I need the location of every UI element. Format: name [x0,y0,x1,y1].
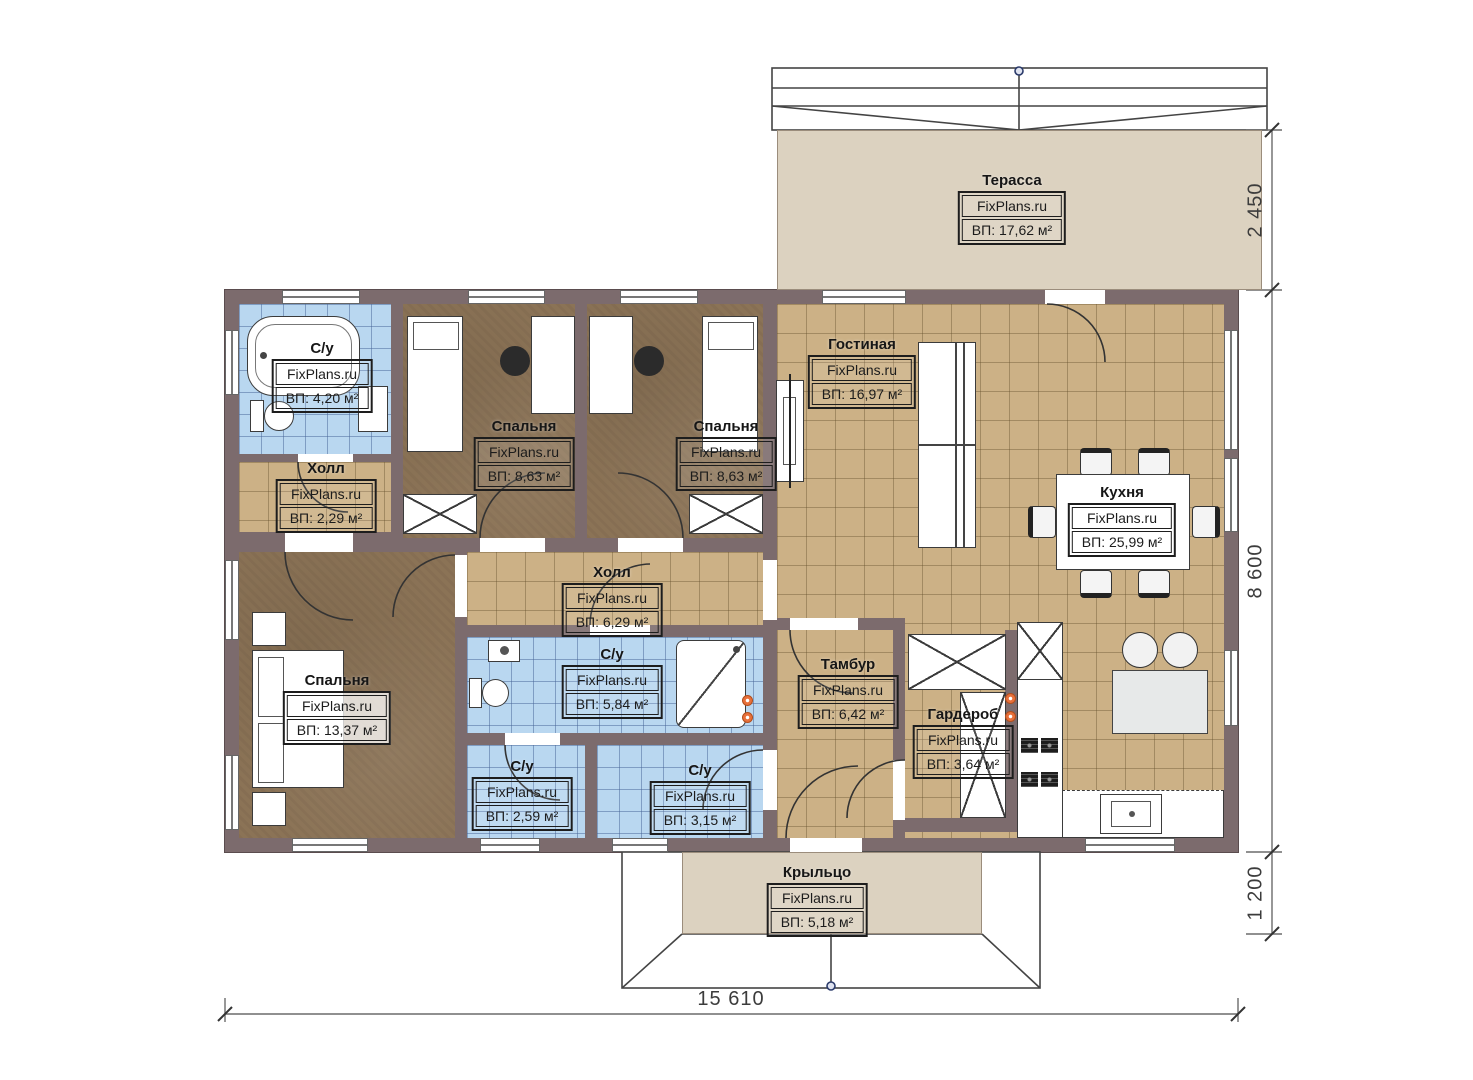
toilet-bowl [482,679,509,707]
wardrobe-cabinet [689,494,763,534]
door-opening [618,538,683,552]
room-area: ВП: 3,15 м² [654,809,747,831]
stove-burner [1021,738,1038,753]
stove-burner [1021,772,1038,787]
room-name: С/у [650,762,751,779]
room-area: ВП: 5,84 м² [566,693,659,715]
room-name: С/у [562,646,663,663]
room-name: Тамбур [798,656,899,673]
desk [589,316,633,414]
room-name: Спальня [676,418,777,435]
dining-chair [1138,448,1170,476]
wall-tambour-top-left [777,618,790,630]
brand-watermark: FixPlans.ru [680,441,773,463]
room-label-living: Гостиная FixPlans.ru ВП: 16,97 м² [808,336,916,409]
brand-watermark: FixPlans.ru [476,781,569,803]
room-label-bedroom3: Спальня FixPlans.ru ВП: 13,37 м² [283,672,391,745]
brand-watermark: FixPlans.ru [478,441,571,463]
brand-watermark: FixPlans.ru [771,887,864,909]
room-area: ВП: 25,99 м² [1072,531,1172,553]
room-area: ВП: 2,59 м² [476,805,569,827]
room-label-hall1: Холл FixPlans.ru ВП: 2,29 м² [276,460,377,533]
toilet [469,678,482,708]
bed [407,316,463,452]
door-opening [763,750,777,810]
window [480,838,540,852]
terrace-door-opening [1045,290,1105,304]
kitchen-sink [1100,794,1162,834]
sink [488,640,520,662]
room-name: Спальня [474,418,575,435]
window [225,560,239,640]
nightstand [252,612,286,646]
dining-chair [1138,570,1170,598]
room-area: ВП: 6,42 м² [802,703,895,725]
fridge [1017,622,1063,680]
room-name: Кухня [1068,484,1176,501]
room-area: ВП: 8,63 м² [680,465,773,487]
brand-watermark: FixPlans.ru [566,587,659,609]
entrance-door-opening [790,838,862,852]
brand-watermark: FixPlans.ru [654,785,747,807]
door-opening [285,532,353,552]
wall-wardrobe-bottom [905,818,1017,832]
room-label-bath1: С/у FixPlans.ru ВП: 4,20 м² [272,340,373,413]
room-area: ВП: 16,97 м² [812,383,912,405]
room-label-terrace: Терасса FixPlans.ru ВП: 17,62 м² [958,172,1066,245]
window [282,290,360,304]
power-outlet [1005,693,1016,704]
office-chair [500,346,530,376]
dining-chair [1028,506,1056,538]
room-label-kitchen: Кухня FixPlans.ru ВП: 25,99 м² [1068,484,1176,557]
room-area: ВП: 6,29 м² [566,611,659,633]
window [292,838,368,852]
dining-chair [1080,448,1112,476]
desk [531,316,575,414]
brand-watermark: FixPlans.ru [280,483,373,505]
wardrobe-cabinet [403,494,477,534]
terrace-slider-window [822,290,906,304]
room-area: ВП: 2,29 м² [280,507,373,529]
brand-watermark: FixPlans.ru [802,679,895,701]
room-name: Холл [276,460,377,477]
dimension-right-bottom: 1 200 [1245,865,1268,920]
room-label-bedroom1: Спальня FixPlans.ru ВП: 8,63 м² [474,418,575,491]
window [1085,838,1175,852]
brand-watermark: FixPlans.ru [917,729,1010,751]
kitchen-island [1112,670,1208,734]
room-label-bath3: С/у FixPlans.ru ВП: 2,59 м² [472,758,573,831]
tv-cabinet [918,342,976,548]
brand-watermark: FixPlans.ru [566,669,659,691]
room-name: Гостиная [808,336,916,353]
terrace-roof-outline [772,67,1267,130]
window [225,330,239,395]
door-opening [893,760,905,820]
room-name: Терасса [958,172,1066,189]
room-label-wardrobe: Гардероб FixPlans.ru ВП: 3,64 м² [913,706,1014,779]
window [225,755,239,830]
dimension-right-middle: 8 600 [1245,543,1268,598]
room-area: ВП: 13,37 м² [287,719,387,741]
toilet [250,400,264,432]
window [620,290,698,304]
room-label-hall2: Холл FixPlans.ru ВП: 6,29 м² [562,564,663,637]
room-label-bath2: С/у FixPlans.ru ВП: 5,84 м² [562,646,663,719]
bar-stool [1122,632,1158,668]
power-outlet [742,712,753,723]
room-name: Крыльцо [767,864,868,881]
room-area: ВП: 17,62 м² [962,219,1062,241]
room-area: ВП: 3,64 м² [917,753,1010,775]
wall-tv [789,374,791,488]
window [1224,330,1238,450]
wardrobe-cabinet [908,634,1006,690]
window [612,838,668,852]
wall-tambour-wardrobe-lower [893,820,905,838]
room-name: Гардероб [913,706,1014,723]
room-label-tambour: Тамбур FixPlans.ru ВП: 6,42 м² [798,656,899,729]
dining-chair [1192,506,1220,538]
wall-tambour-top-right [858,618,905,630]
room-name: С/у [272,340,373,357]
room-name: С/у [472,758,573,775]
brand-watermark: FixPlans.ru [962,195,1062,217]
brand-watermark: FixPlans.ru [812,359,912,381]
room-label-bedroom2: Спальня FixPlans.ru ВП: 8,63 м² [676,418,777,491]
room-area: ВП: 5,18 м² [771,911,864,933]
power-outlet [742,695,753,706]
window [1224,458,1238,532]
dimension-right-top: 2 450 [1245,182,1268,237]
window [1224,650,1238,726]
room-label-porch: Крыльцо FixPlans.ru ВП: 5,18 м² [767,864,868,937]
stove-burner [1041,738,1058,753]
shower-cabin [676,640,746,728]
room-name: Холл [562,564,663,581]
window [468,290,545,304]
dining-chair [1080,570,1112,598]
bar-stool [1162,632,1198,668]
room-area: ВП: 4,20 м² [276,387,369,409]
door-opening [505,733,560,745]
door-opening [480,538,545,552]
room-label-bath4: С/у FixPlans.ru ВП: 3,15 м² [650,762,751,835]
floor-plan-canvas: Терасса FixPlans.ru ВП: 17,62 м² С/у Fix… [0,0,1473,1080]
room-area: ВП: 8,63 м² [478,465,571,487]
brand-watermark: FixPlans.ru [1072,507,1172,529]
office-chair [634,346,664,376]
door-opening [763,560,777,620]
stove-burner [1041,772,1058,787]
door-opening [790,618,858,630]
door-opening [455,555,467,617]
nightstand [252,792,286,826]
brand-watermark: FixPlans.ru [276,363,369,385]
dimension-bottom: 15 610 [697,988,764,1011]
room-name: Спальня [283,672,391,689]
brand-watermark: FixPlans.ru [287,695,387,717]
